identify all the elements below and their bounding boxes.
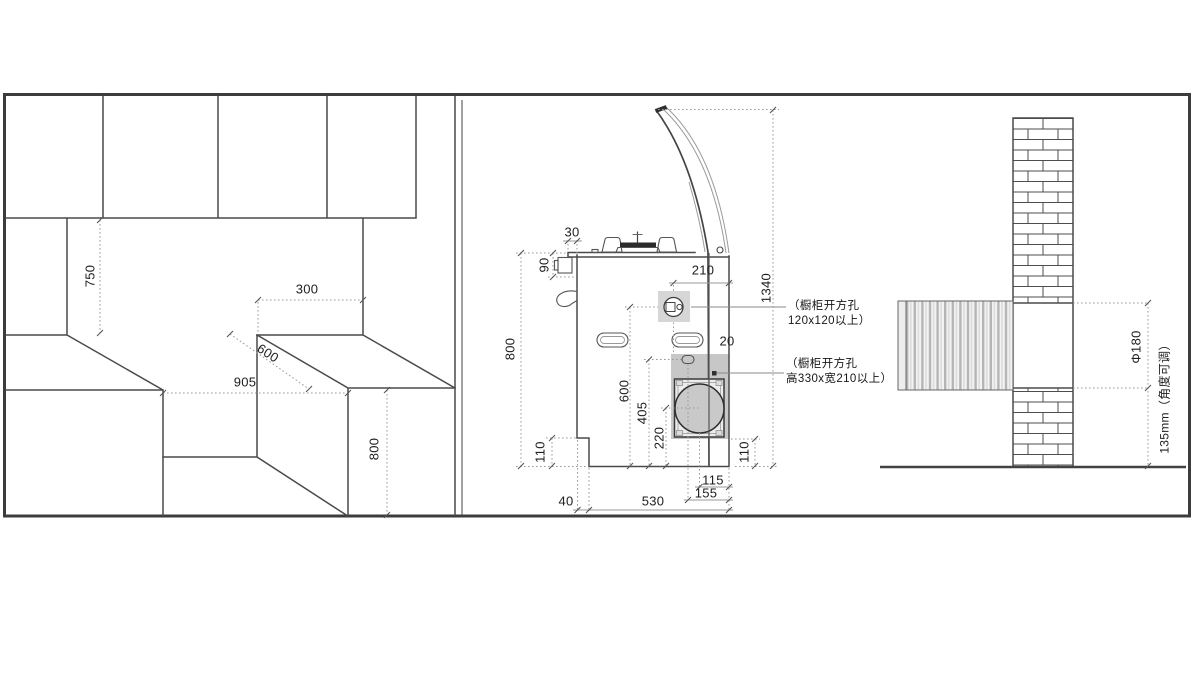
exhaust-duct [898,301,1013,390]
left-view-cabinets [6,97,462,519]
dim-label-110-left: 110 [533,441,548,463]
dim-label-1340: 1340 [759,273,774,303]
annotation-duct-line2: 高330x宽210以上） [786,372,892,387]
gas-valve [664,298,683,317]
dim-label-210: 210 [692,263,715,278]
dim-label-155: 155 [695,486,718,501]
diagram-page: 750 300 600 905 800 30 90 800 110 1340 2… [0,0,1200,700]
dim-label-90: 90 [537,257,552,272]
dim-label-20: 20 [719,334,734,349]
hood-screw-icon [717,247,723,253]
gas-burner [602,232,677,253]
brick-wall-upper [1013,118,1073,303]
dim-label-530: 530 [642,494,665,509]
body-slots [597,333,703,347]
dim-label-800-body: 800 [503,338,518,361]
installation-diagram-canvas [0,0,1200,700]
wall-duct-view [880,118,1186,469]
annotation-gas-line1: （橱柜开方孔 [788,299,871,314]
brick-wall-lower [1013,388,1073,466]
dim-label-405: 405 [635,402,650,425]
annotation-duct-cutout: （橱柜开方孔 高330x宽210以上） [786,357,892,387]
dim-label-750: 750 [83,265,98,288]
dim-label-300: 300 [296,282,319,297]
annotation-gas-cutout: （橱柜开方孔 120x120以上） [788,299,871,329]
dim-label-30: 30 [564,225,579,240]
dim-label-110-right: 110 [737,441,752,463]
dim-label-diameter-180: Φ180 [1129,330,1144,363]
dim-label-600-valve: 600 [617,380,632,403]
dim-label-800-counter: 800 [367,438,382,461]
dim-label-40: 40 [558,494,573,509]
annotation-gas-line2: 120x120以上） [788,314,871,329]
annotation-duct-line1: （橱柜开方孔 [786,357,892,372]
dim-label-220: 220 [652,427,667,450]
dim-label-135mm-adjustable: 135mm（角度可调） [1156,338,1173,453]
dim-label-905: 905 [234,375,257,390]
